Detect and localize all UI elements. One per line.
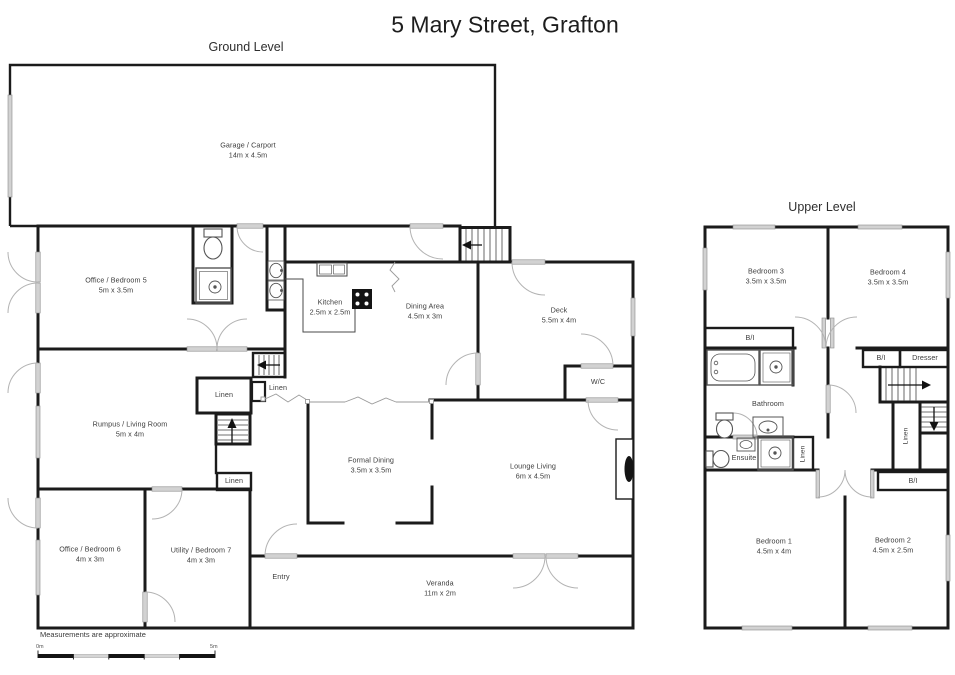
closet-label-linen-hall: Linen xyxy=(215,390,233,400)
laundry-tubs-icon xyxy=(268,261,284,300)
stair-arrow-left-icon xyxy=(257,361,266,370)
room-label-office5: Office / Bedroom 55m x 3.5m xyxy=(85,276,147,297)
upper-walls xyxy=(705,227,948,628)
closet-label-bi-hall: B/I xyxy=(876,353,885,363)
stair-arrow-left-icon xyxy=(462,241,471,250)
ground-level-heading: Ground Level xyxy=(208,40,283,54)
scale-end-label: 5m xyxy=(210,644,218,650)
stair-landing-ground xyxy=(257,355,280,375)
toilet-icon xyxy=(706,451,729,468)
window-markers xyxy=(8,95,635,595)
stove-icon xyxy=(352,289,372,309)
closet-label-linen-lower: Linen xyxy=(225,476,243,486)
closet-label-linen-left: Linen xyxy=(800,446,807,463)
floor-plan-page: 5 Mary Street, Grafton Ground Level Uppe… xyxy=(0,0,955,675)
closet-label-linen-right: Linen xyxy=(903,428,910,445)
room-label-utility: Utility / Bedroom 74m x 3m xyxy=(171,546,232,567)
room-label-deck: Deck5.5m x 4m xyxy=(542,306,576,327)
bathtub-icon xyxy=(707,350,759,385)
room-label-bathroom: Bathroom xyxy=(752,399,784,409)
stair-arrow-down-icon xyxy=(930,422,939,431)
room-label-bedroom3: Bedroom 33.5m x 3.5m xyxy=(746,267,787,288)
room-label-formal-dining: Formal Dining3.5m x 3.5m xyxy=(348,456,394,477)
room-label-office6: Office / Bedroom 64m x 3m xyxy=(59,545,121,566)
closet-label-linen-mid: Linen xyxy=(269,383,287,393)
stair-arrow-up-icon xyxy=(228,418,237,428)
fireplace-icon xyxy=(616,439,634,499)
room-label-lounge: Lounge Living6m x 4.5m xyxy=(510,462,556,483)
room-label-bedroom4: Bedroom 43.5m x 3.5m xyxy=(868,268,909,289)
closet-label-bi-bed3: B/I xyxy=(745,333,754,343)
shower-icon xyxy=(760,350,793,385)
room-label-veranda: Veranda11m x 2m xyxy=(424,579,456,600)
vanity-sink-icon xyxy=(753,417,783,437)
shower-icon xyxy=(758,437,793,470)
upper-level-heading: Upper Level xyxy=(788,200,855,214)
room-label-entry: Entry xyxy=(272,572,289,582)
stair-arrow-right-icon xyxy=(922,381,931,390)
upper-floor-plan xyxy=(703,225,950,630)
closet-label-dresser: Dresser xyxy=(912,353,938,363)
room-label-bedroom1: Bedroom 14.5m x 4m xyxy=(756,537,792,558)
ground-floor-plan xyxy=(8,65,635,628)
room-label-garage: Garage / Carport14m x 4.5m xyxy=(220,141,276,162)
staircase-ground-top xyxy=(462,229,502,261)
room-label-wc: W/C xyxy=(591,377,605,387)
closet-label-bi-bed2: B/I xyxy=(908,476,917,486)
floor-plan-drawing xyxy=(0,0,955,675)
scale-bar xyxy=(38,651,215,660)
room-label-dining: Dining Area4.5m x 3m xyxy=(406,302,444,323)
room-label-bedroom2: Bedroom 24.5m x 2.5m xyxy=(873,536,914,557)
page-title: 5 Mary Street, Grafton xyxy=(391,12,619,39)
kitchen-sink-icon xyxy=(317,263,347,276)
staircase-upper xyxy=(886,368,947,431)
measurements-note: Measurements are approximate xyxy=(40,630,146,639)
toilet-icon xyxy=(204,229,222,259)
scale-start-label: 0m xyxy=(36,644,44,650)
room-label-ensuite: Ensuite xyxy=(732,453,757,463)
shower-icon xyxy=(196,268,231,303)
sink-icon xyxy=(737,438,755,451)
room-label-rumpus: Rumpus / Living Room5m x 4m xyxy=(93,420,168,441)
toilet-icon xyxy=(716,413,733,438)
room-label-kitchen: Kitchen2.5m x 2.5m xyxy=(310,298,351,319)
staircase-ground-main xyxy=(218,418,248,443)
